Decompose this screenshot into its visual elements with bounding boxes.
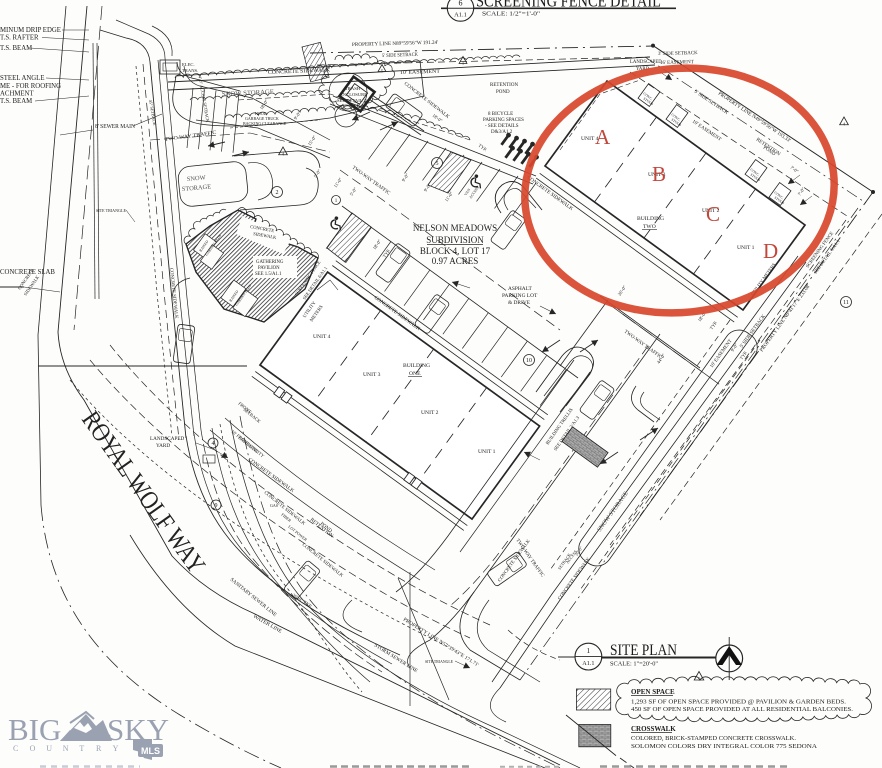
svg-text:9: 9 (215, 503, 218, 509)
svg-text:B: B (652, 162, 666, 186)
svg-text:UNIT 1: UNIT 1 (478, 449, 496, 455)
svg-text:PARKING LOT: PARKING LOT (502, 293, 538, 299)
svg-text:10: 10 (526, 358, 532, 364)
svg-text:A1.1: A1.1 (454, 12, 467, 19)
svg-text:SCALE: 1/2"=1'-0": SCALE: 1/2"=1'-0" (482, 11, 541, 18)
svg-text:- SEE DETAILS: - SEE DETAILS (485, 124, 519, 129)
svg-text:SEE 1.5/A1.1: SEE 1.5/A1.1 (255, 272, 282, 277)
svg-text:ME - FOR ROOFING: ME - FOR ROOFING (0, 83, 61, 90)
svg-text:STEEL ANGLE: STEEL ANGLE (0, 75, 45, 82)
svg-text:UNIT 2: UNIT 2 (421, 410, 439, 416)
svg-text:D&3/A1.2: D&3/A1.2 (491, 130, 513, 135)
svg-text:OPEN SPACE: OPEN SPACE (631, 688, 675, 696)
svg-text:11: 11 (843, 300, 849, 306)
svg-text:2: 2 (276, 190, 279, 196)
svg-text:SITE TRIANGLE: SITE TRIANGLE (96, 208, 127, 213)
svg-text:UNIT 4: UNIT 4 (313, 334, 331, 340)
svg-text:UNIT 3: UNIT 3 (363, 372, 381, 378)
svg-text:CROSSWALK: CROSSWALK (631, 725, 676, 733)
svg-text:SCALE: 1"=20'-0": SCALE: 1"=20'-0" (610, 662, 659, 668)
svg-text:A: A (595, 125, 611, 149)
svg-text:1,293 SF OF OPEN SPACE PROVIDE: 1,293 SF OF OPEN SPACE PROVIDED @ PAVILI… (631, 699, 847, 706)
svg-text:U: U (46, 744, 52, 753)
svg-text:SUBDIVISION: SUBDIVISION (426, 235, 484, 245)
svg-text:D: D (763, 239, 778, 263)
svg-text:T.S. BEAM: T.S. BEAM (0, 98, 32, 105)
svg-text:TRASH: TRASH (345, 86, 361, 91)
svg-text:ELEC.: ELEC. (182, 62, 195, 67)
svg-text:C: C (706, 202, 720, 226)
svg-text:T.S. BEAM: T.S. BEAM (0, 45, 32, 52)
svg-text:BIG: BIG (8, 712, 61, 747)
svg-text:GAS: GAS (270, 503, 278, 508)
svg-text:PAVILION: PAVILION (258, 266, 280, 271)
svg-text:MLS: MLS (141, 746, 160, 756)
svg-text:O: O (30, 744, 36, 753)
svg-text:8 BICYCLE: 8 BICYCLE (488, 112, 513, 117)
svg-text:ACHMENT: ACHMENT (0, 91, 34, 98)
svg-text:RETENTION: RETENTION (490, 83, 518, 88)
svg-text:1: 1 (462, 60, 464, 65)
svg-text:SITE TRIANGLE: SITE TRIANGLE (425, 659, 454, 664)
svg-text:TRANS.: TRANS. (182, 68, 198, 73)
svg-text:450 SF OF OPEN SPACE PROVIDED: 450 SF OF OPEN SPACE PROVIDED AT ALL RES… (631, 706, 854, 713)
svg-text:Y: Y (113, 744, 119, 753)
svg-text:UNIT 1: UNIT 1 (737, 245, 755, 251)
svg-text:0.97 ACRES: 0.97 ACRES (432, 256, 479, 266)
svg-text:T.S. RAFTER: T.S. RAFTER (0, 35, 39, 42)
svg-text:SITE PLAN: SITE PLAN (610, 642, 677, 659)
svg-text:BUILDING: BUILDING (637, 216, 664, 222)
svg-text:COLORED, BRICK-STAMPED CONCRET: COLORED, BRICK-STAMPED CONCRETE CROSSWAL… (631, 735, 796, 742)
svg-text:1: 1 (587, 646, 591, 655)
svg-text:TWO: TWO (643, 224, 656, 230)
svg-text:A1.1: A1.1 (582, 660, 594, 667)
svg-text:ASPHALT: ASPHALT (508, 286, 532, 292)
svg-text:6: 6 (459, 0, 463, 8)
svg-text:8' SEWER MAIN: 8' SEWER MAIN (95, 124, 136, 130)
svg-text:SEE DETAIL 3/: SEE DETAIL 3/ (337, 98, 368, 103)
svg-text:SOLOMON COLORS DRY INTEGRAL CO: SOLOMON COLORS DRY INTEGRAL COLOR 775 SE… (631, 743, 818, 750)
svg-text:C: C (13, 744, 18, 753)
svg-text:ONE: ONE (409, 371, 421, 377)
svg-text:GATHERING: GATHERING (256, 260, 284, 265)
svg-text:PARKING SPACES: PARKING SPACES (483, 118, 524, 123)
svg-text:MINUM DRIP EDGE: MINUM DRIP EDGE (0, 27, 61, 34)
svg-text:LANDSCAPED: LANDSCAPED (630, 60, 662, 65)
svg-text:ENCLOSURE: ENCLOSURE (340, 92, 367, 97)
svg-text:POND: POND (496, 90, 510, 95)
svg-text:5: 5 (436, 161, 439, 167)
svg-text:YARD: YARD (156, 443, 170, 449)
svg-text:4: 4 (212, 441, 215, 447)
svg-text:R: R (96, 744, 102, 753)
svg-text:BUILDING: BUILDING (403, 363, 430, 369)
svg-text:& DRIVE: & DRIVE (508, 300, 531, 306)
svg-text:T: T (79, 744, 84, 753)
svg-text:BLOCK 4, LOT 17: BLOCK 4, LOT 17 (420, 246, 491, 256)
svg-text:3' SIDE SETBACK: 3' SIDE SETBACK (658, 51, 698, 57)
svg-text:N: N (63, 744, 69, 753)
